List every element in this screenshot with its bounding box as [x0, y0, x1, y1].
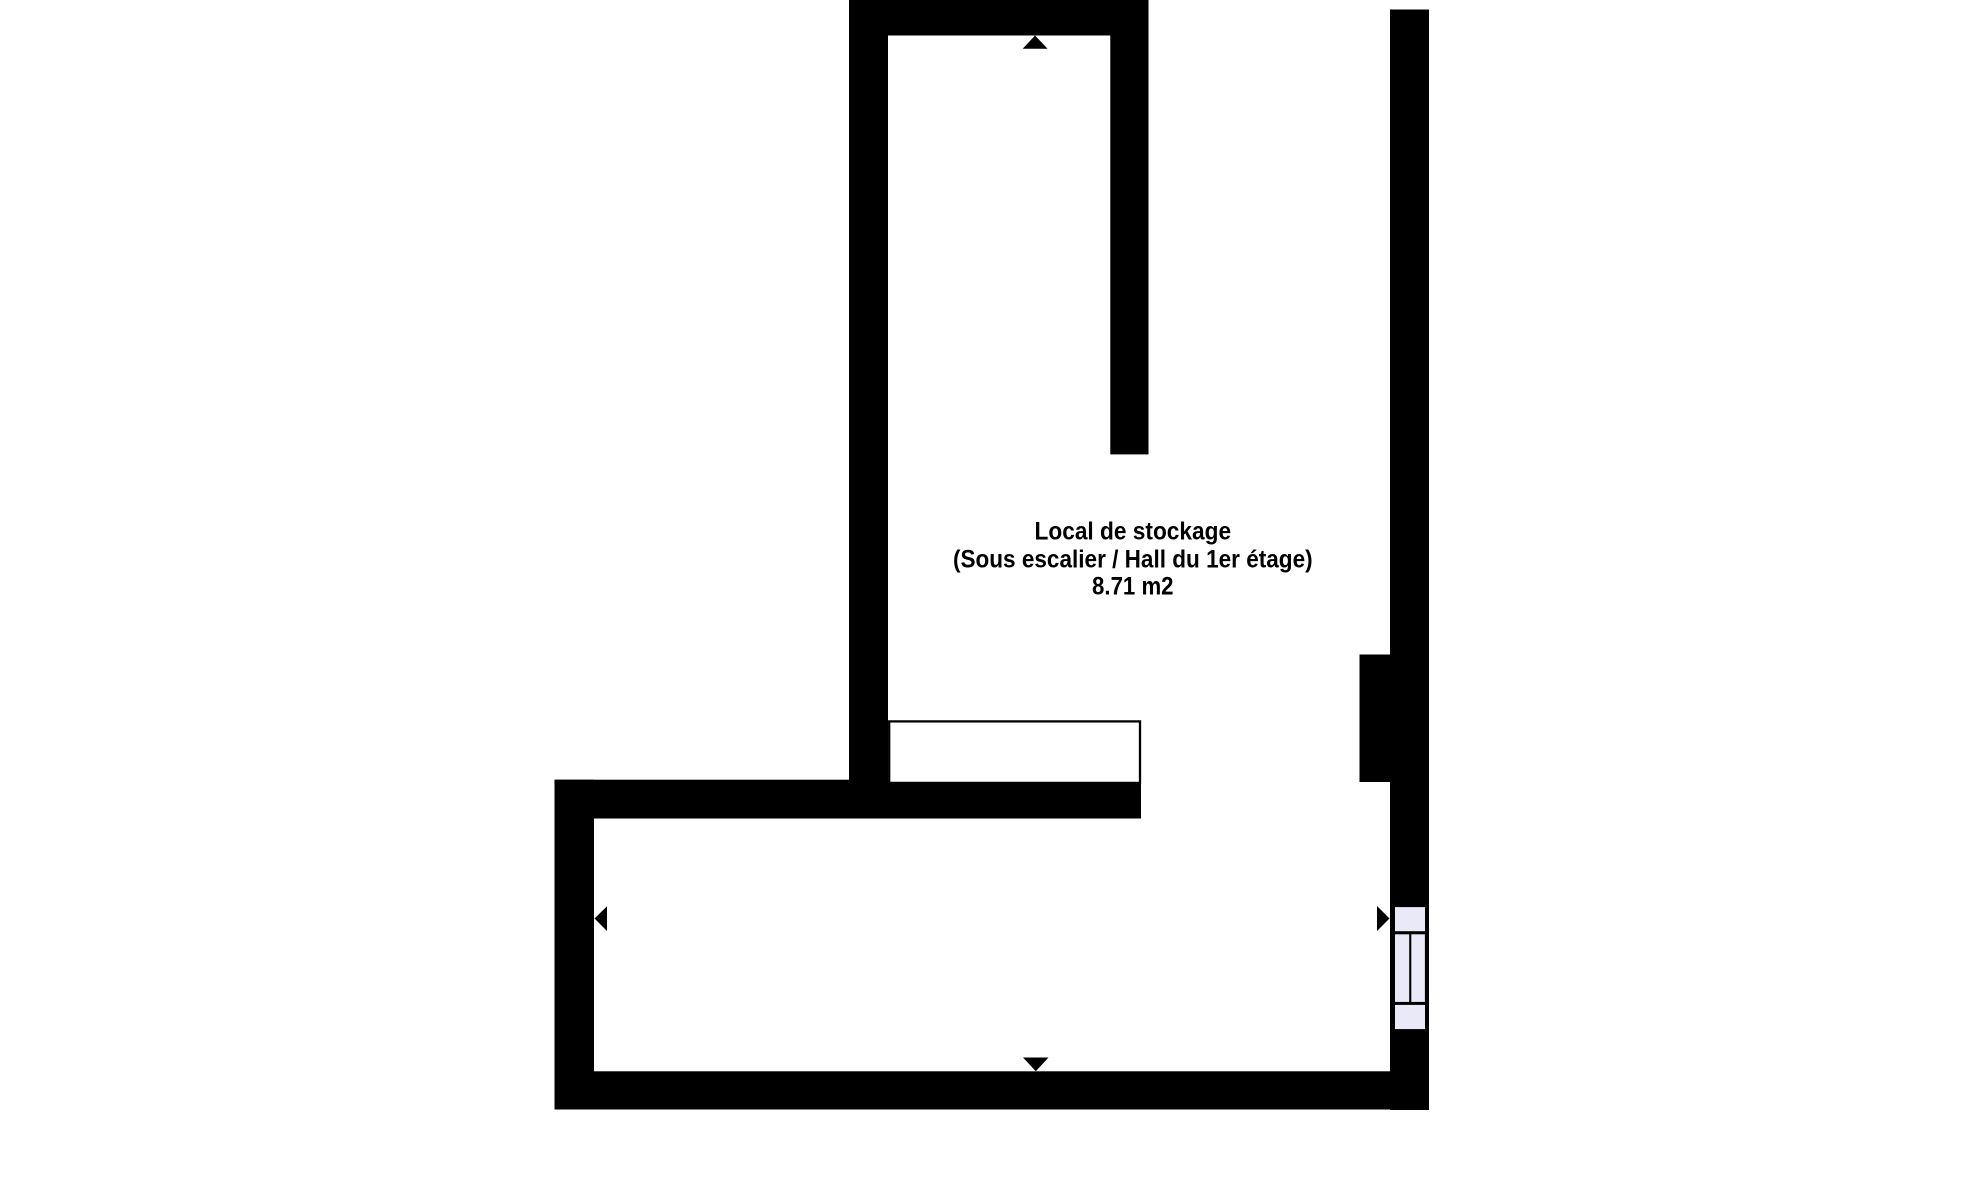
svg-text:8.71 m2: 8.71 m2 — [1092, 572, 1174, 600]
svg-text:Local de stockage: Local de stockage — [1035, 517, 1232, 545]
svg-text:(Sous escalier / Hall du 1er é: (Sous escalier / Hall du 1er étage) — [953, 546, 1313, 574]
